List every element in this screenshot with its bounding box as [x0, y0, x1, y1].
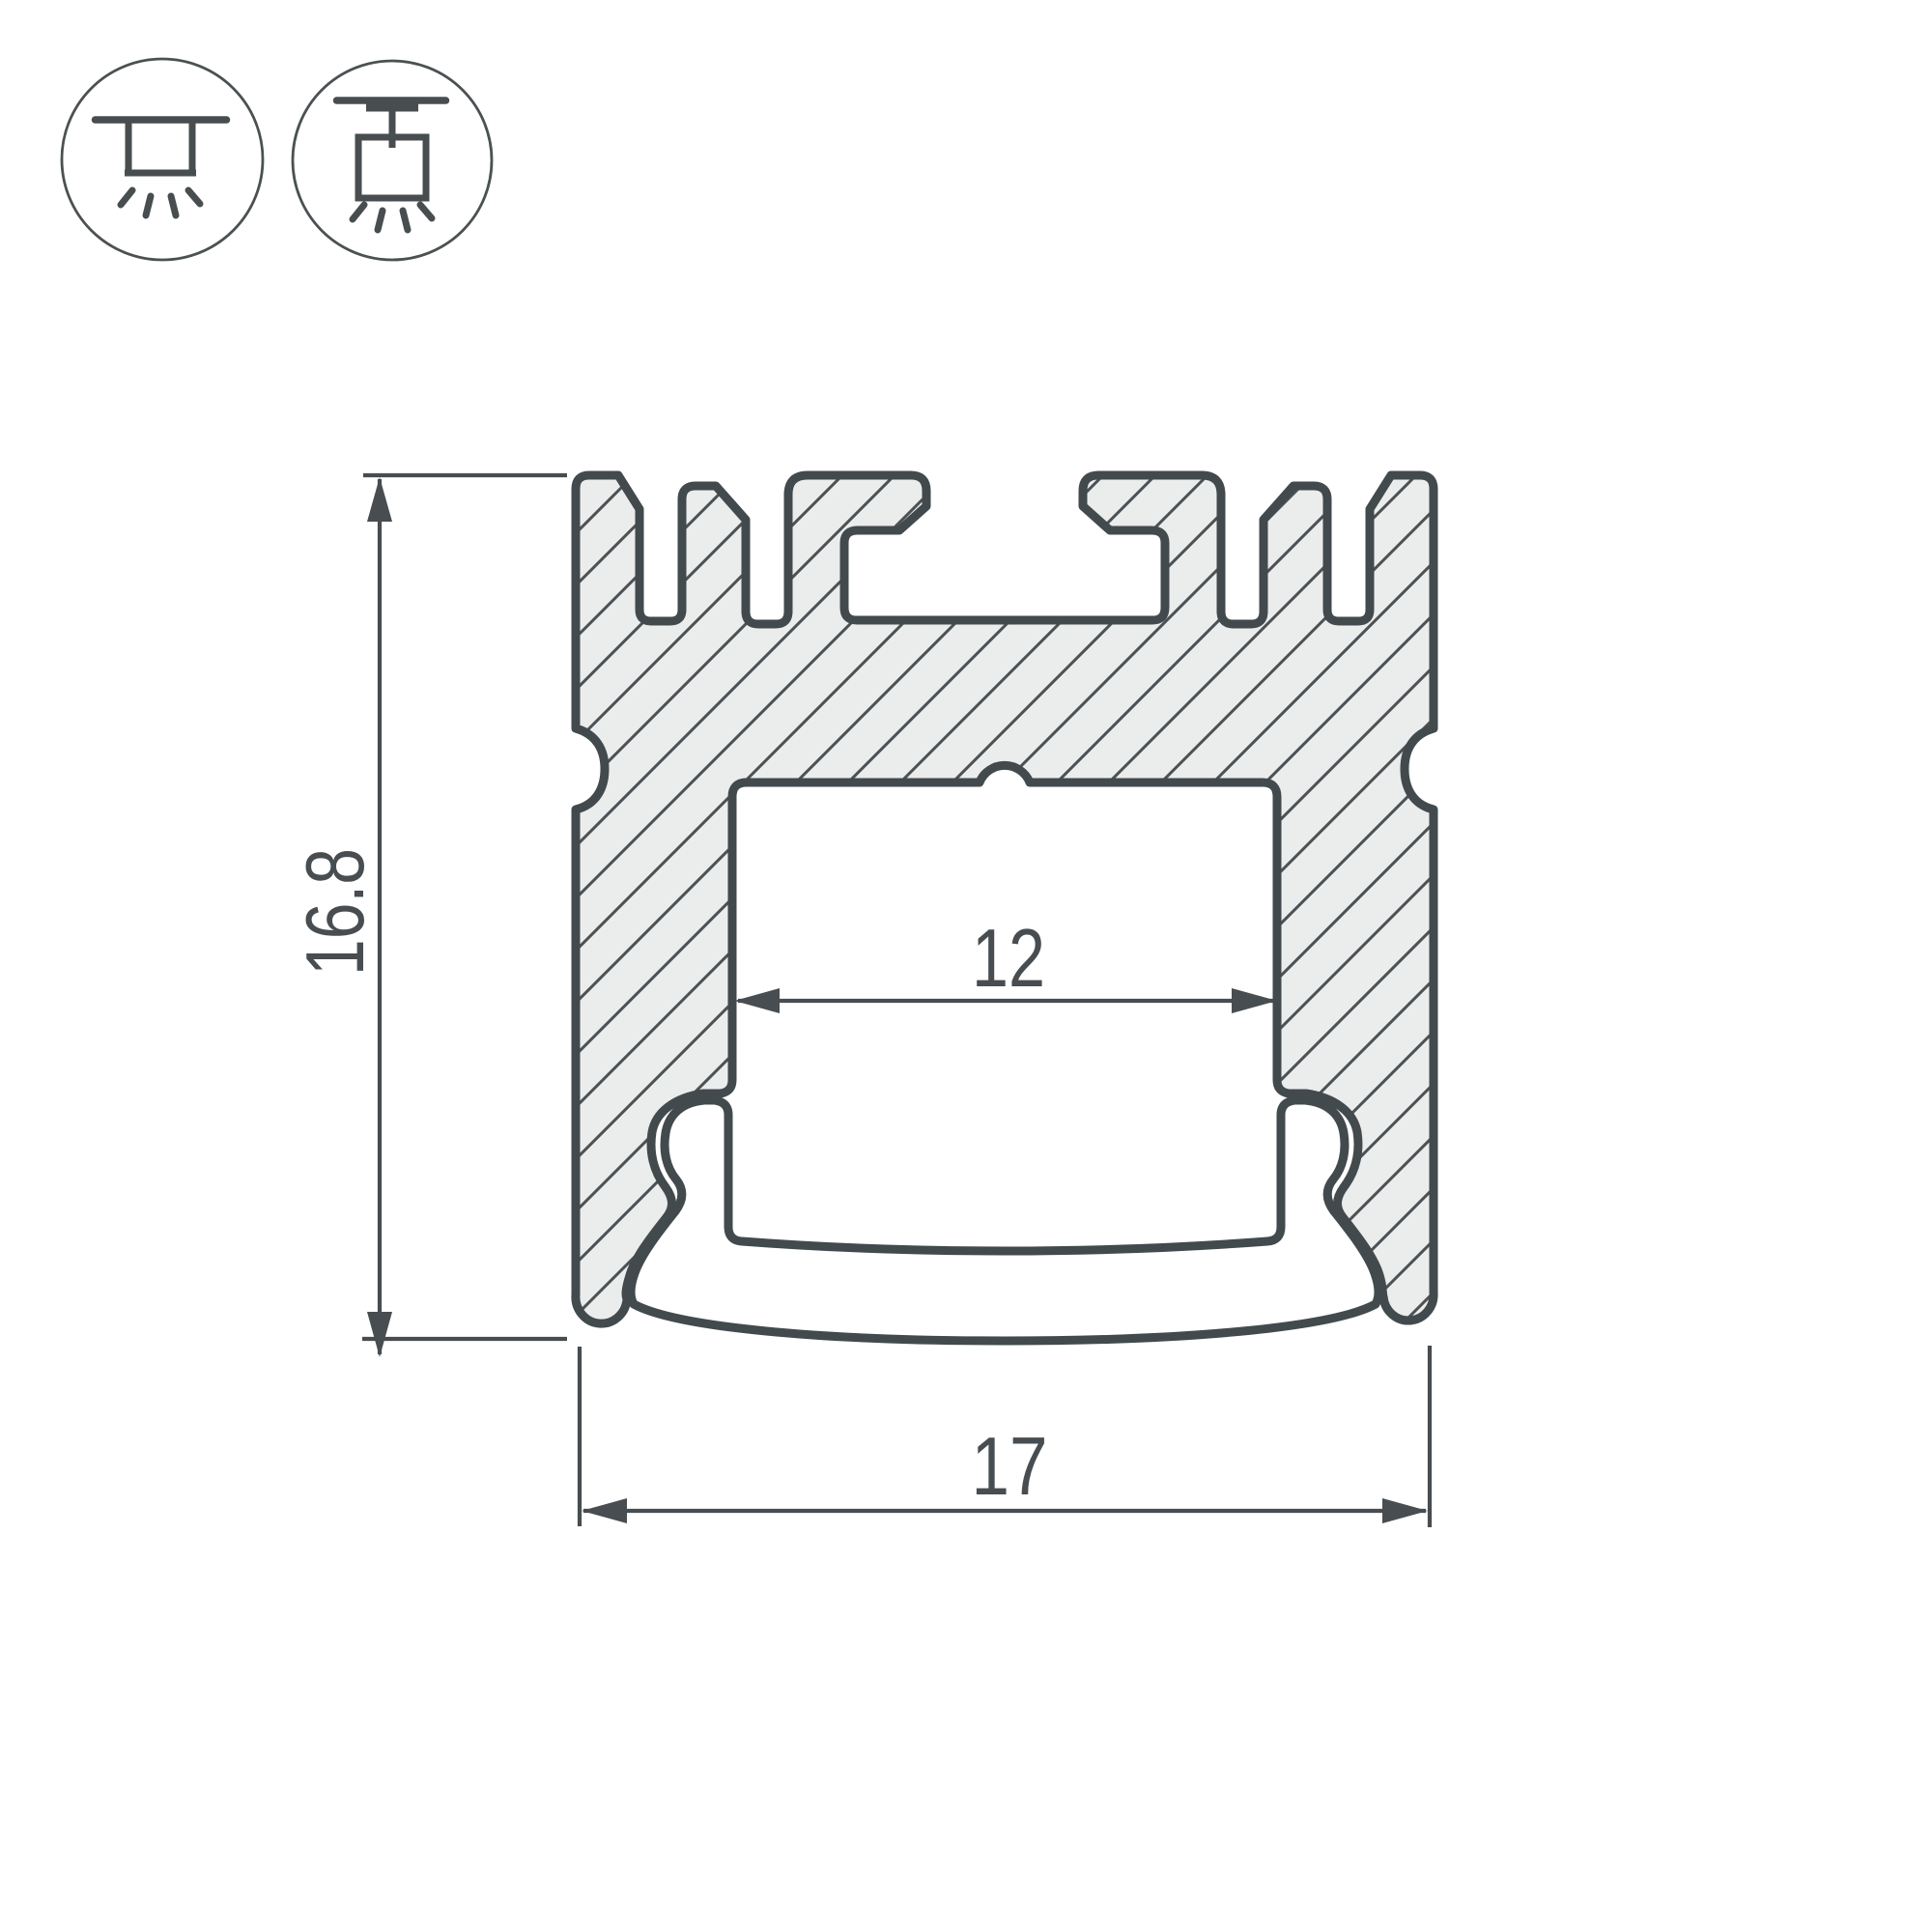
svg-text:12: 12	[972, 913, 1045, 1005]
svg-text:17: 17	[972, 1421, 1048, 1513]
svg-text:16.8: 16.8	[290, 848, 382, 976]
